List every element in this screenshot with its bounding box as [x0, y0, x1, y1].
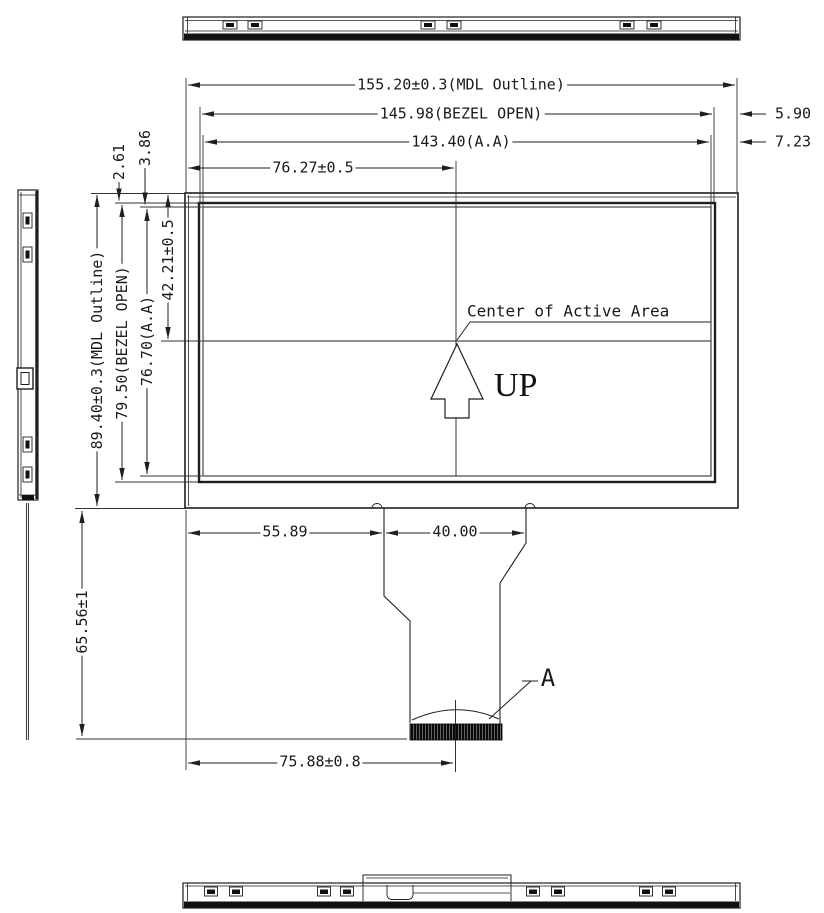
- dim-fpc-length: 65.56±1: [74, 588, 91, 655]
- dim-bezel-open-height: 79.50(BEZEL OPEN): [114, 264, 131, 422]
- detail-a-label: A: [541, 664, 555, 692]
- detail-a-leader: [489, 681, 538, 719]
- dim-right-gap-aa: 7.23: [773, 133, 813, 150]
- fpc-tail: [384, 508, 538, 772]
- bottom-edge-connector-section: [363, 875, 511, 901]
- front-view: [185, 193, 738, 508]
- dim-right-gap-bezel: 5.90: [773, 105, 813, 122]
- up-orientation-label: UP: [494, 367, 537, 405]
- dim-active-area-height: 76.70(A.A): [139, 294, 156, 388]
- connector: [410, 724, 502, 740]
- dim-mdl-outline-height: 89.40±0.3(MDL Outline): [89, 249, 106, 452]
- active-area: [203, 207, 711, 476]
- bottom-edge-latches: [205, 887, 676, 896]
- dim-fpc-offset: 55.89: [260, 523, 309, 540]
- dim-top-gap-aa: 3.86: [137, 128, 154, 168]
- left-edge-fpc-line: [26, 503, 28, 740]
- dim-center-offset-x: 76.27±0.5: [270, 159, 355, 176]
- top-edge-latches: [223, 21, 661, 29]
- dim-center-offset-y: 42.21±0.5: [160, 217, 177, 302]
- module-outline: [185, 193, 738, 508]
- dim-bezel-open-width: 145.98(BEZEL OPEN): [378, 105, 545, 122]
- dim-mdl-outline-width: 155.20±0.3(MDL Outline): [355, 76, 567, 93]
- dim-connector-center: 75.88±0.8: [277, 753, 362, 770]
- center-note-leader: [457, 322, 711, 340]
- left-edge-view: [17, 190, 38, 740]
- center-of-active-area-label: Center of Active Area: [467, 302, 669, 321]
- dim-top-gap-bezel: 2.61: [111, 142, 128, 182]
- left-edge-latches: [23, 213, 32, 482]
- lcd-module-outline-drawing: 155.20±0.3(MDL Outline) 145.98(BEZEL OPE…: [0, 0, 824, 913]
- dim-active-area-width: 143.40(A.A): [409, 133, 512, 150]
- bezel-opening: [199, 203, 715, 482]
- centerlines: [203, 207, 711, 476]
- extension-lines: [75, 78, 737, 770]
- up-arrow: [431, 344, 483, 418]
- dim-fpc-width: 40.00: [430, 523, 479, 540]
- left-edge-center-latch: [17, 368, 33, 389]
- top-edge-view: [183, 17, 740, 40]
- bottom-edge-view: [183, 875, 740, 908]
